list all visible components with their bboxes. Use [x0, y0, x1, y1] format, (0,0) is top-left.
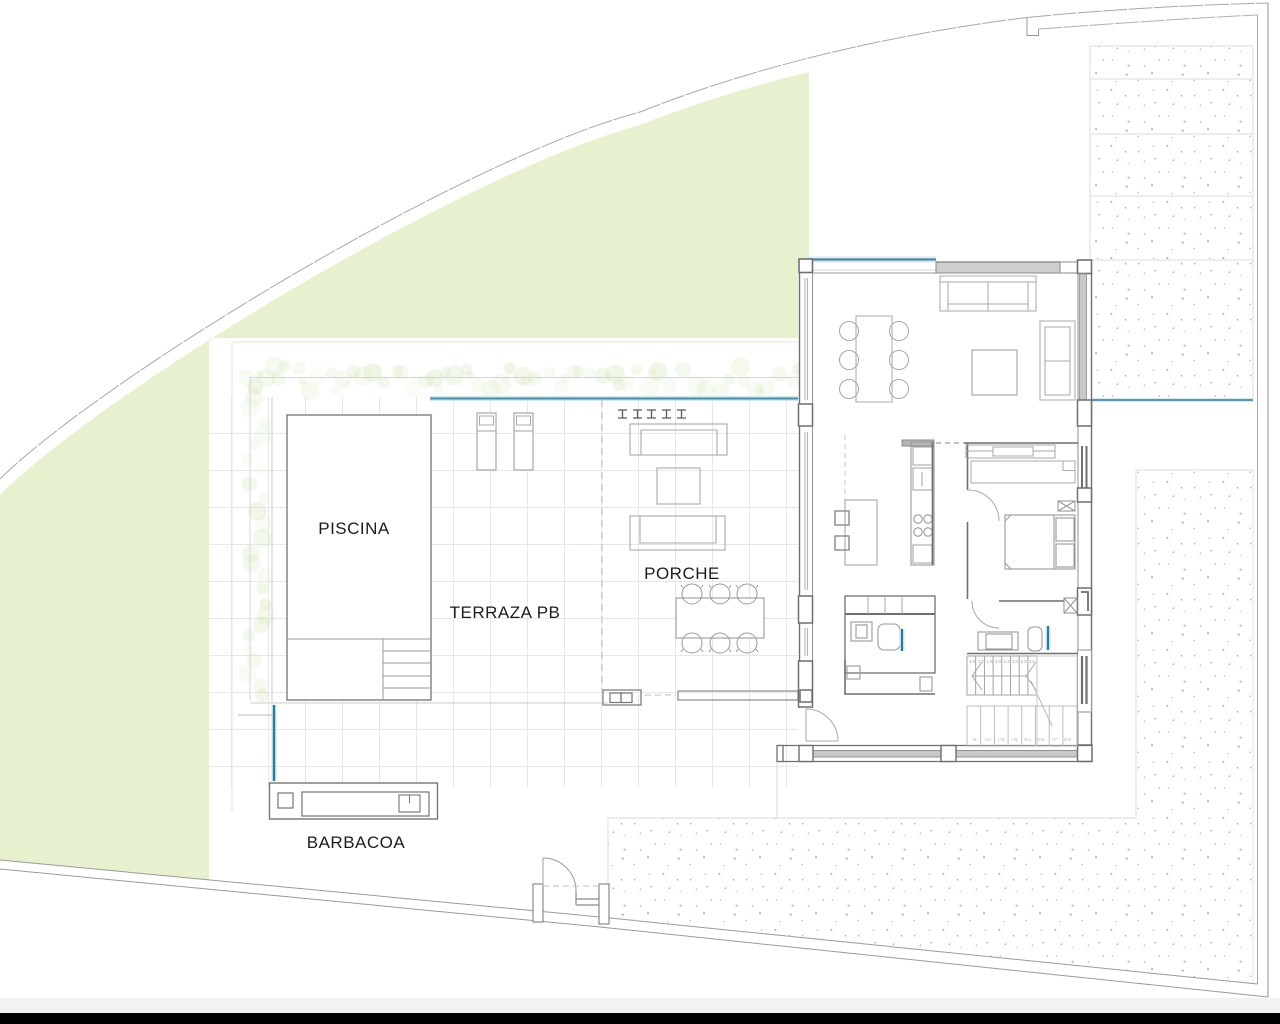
svg-text:1 2 3 4 5 6 7 8: 1 2 3 4 5 6 7 8 [970, 737, 1075, 742]
svg-text:PISCINA: PISCINA [318, 519, 390, 538]
svg-text:18 17 16 15 14 13 12 11: 18 17 16 15 14 13 12 11 [969, 659, 1036, 664]
svg-text:TERRAZA PB: TERRAZA PB [450, 603, 561, 622]
svg-text:PORCHE: PORCHE [644, 564, 720, 583]
svg-text:BARBACOA: BARBACOA [307, 833, 406, 852]
